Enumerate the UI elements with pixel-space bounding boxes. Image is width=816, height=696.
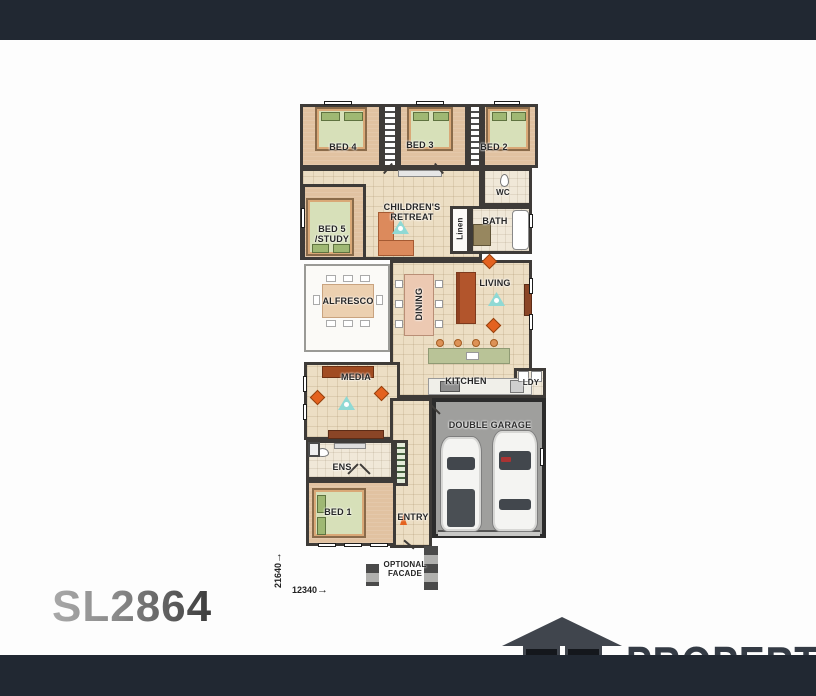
car-sedan	[492, 430, 538, 532]
window	[529, 214, 533, 228]
label-optional-facade: OPTIONAL FACADE	[381, 560, 429, 578]
label-living: LIVING	[468, 278, 522, 288]
alfresco-chair	[343, 320, 353, 327]
label-entry: ENTRY	[388, 512, 438, 522]
window	[529, 314, 533, 330]
window	[324, 101, 352, 105]
robe-bed4	[382, 104, 398, 168]
window	[494, 101, 520, 105]
top-bar	[0, 0, 816, 40]
up-arrow-icon: →	[272, 552, 284, 563]
dimension-horizontal: 12340→	[292, 584, 328, 596]
alfresco-chair	[360, 275, 370, 282]
ens-vanity	[334, 443, 366, 449]
alfresco-chair	[360, 320, 370, 327]
wc-toilet	[500, 174, 509, 187]
room-wc	[482, 168, 532, 206]
bottom-bar	[0, 655, 816, 696]
window	[303, 376, 307, 392]
walk-in-robe	[394, 440, 408, 486]
floor-plan: BED 4 BED 3 BED 2 CHILDREN'S RETREAT BED…	[288, 100, 560, 600]
alfresco-chair	[343, 275, 353, 282]
label-kitchen: KITCHEN	[434, 376, 498, 386]
label-bath: BATH	[474, 216, 516, 226]
alfresco-chair	[326, 320, 336, 327]
label-ldy: LDY	[514, 378, 548, 387]
dimension-vertical: 21640→	[272, 540, 284, 600]
label-bed5: BED 5 /STUDY	[308, 224, 356, 245]
label-bed1: BED 1	[314, 507, 362, 517]
dining-chair	[395, 280, 403, 288]
label-linen: Linen	[455, 214, 464, 244]
dining-chair	[435, 280, 443, 288]
right-arrow-icon: →	[317, 584, 328, 596]
dining-chair	[435, 300, 443, 308]
label-media: MEDIA	[328, 372, 384, 382]
label-garage: DOUBLE GARAGE	[440, 420, 540, 430]
alfresco-chair	[326, 275, 336, 282]
robe-bed3	[468, 104, 482, 168]
island-sink	[466, 352, 479, 360]
dining-chair	[435, 320, 443, 328]
dining-chair	[395, 320, 403, 328]
page: BED 4 BED 3 BED 2 CHILDREN'S RETREAT BED…	[0, 0, 816, 696]
label-bed2: BED 2	[466, 142, 522, 152]
dining-chair	[395, 300, 403, 308]
window	[318, 543, 336, 547]
label-wc: WC	[488, 188, 518, 197]
label-retreat: CHILDREN'S RETREAT	[376, 202, 448, 223]
retreat-desk	[398, 170, 442, 177]
label-ens: ENS	[324, 462, 360, 472]
ens-shower	[308, 442, 320, 457]
bath-vanity	[473, 224, 491, 246]
plan-code: SL2864	[52, 582, 212, 632]
label-alfresco: ALFRESCO	[310, 296, 386, 306]
facade-marker	[366, 564, 379, 586]
label-bed3: BED 3	[394, 140, 446, 150]
car-ute	[440, 436, 482, 532]
house-roof-icon	[502, 617, 622, 646]
media-tv-cabinet	[328, 430, 384, 439]
label-dining: DINING	[414, 274, 424, 334]
window	[370, 543, 388, 547]
window	[540, 448, 544, 466]
window	[416, 101, 444, 105]
label-bed4: BED 4	[316, 142, 370, 152]
window	[344, 543, 362, 547]
window	[529, 278, 533, 294]
window	[301, 208, 305, 228]
retreat-couch-arm	[378, 240, 414, 256]
window	[303, 404, 307, 420]
